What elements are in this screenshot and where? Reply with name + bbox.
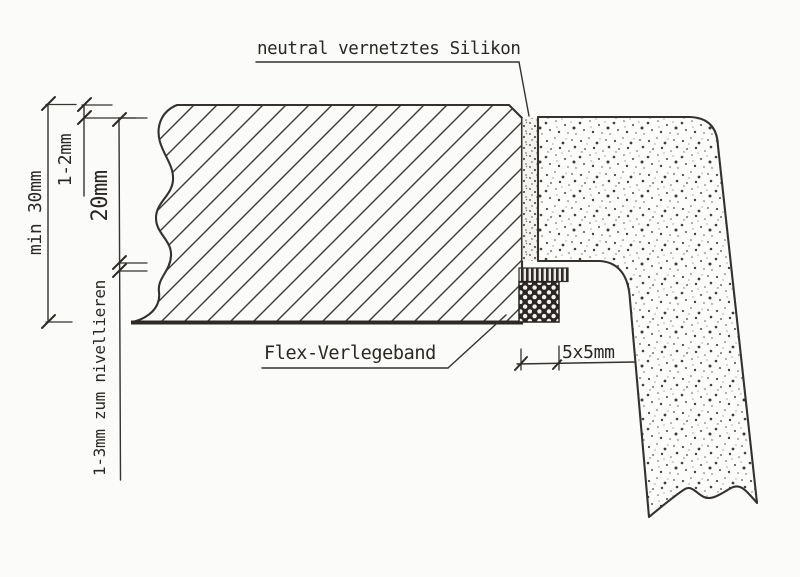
tape-label: Flex-Verlegeband xyxy=(264,343,436,364)
dim-leveling-label: 1-3mm zum nivellieren xyxy=(90,280,109,476)
silicone-label: neutral vernetztes Silikon xyxy=(257,39,521,59)
silicone-joint xyxy=(523,118,539,261)
installation-detail-diagram: min 30mm 1-2mm 20mm 1-3mm zum nivelliere… xyxy=(0,0,800,577)
silicone-leader-line xyxy=(519,62,529,116)
wall-panel-cross-section xyxy=(538,117,757,517)
installation-detail-page: min 30mm 1-2mm 20mm 1-3mm zum nivelliere… xyxy=(0,0,800,577)
leveling-layer xyxy=(519,268,568,282)
dim-min-30mm-label: min 30mm xyxy=(25,171,46,255)
dimension-tape-size: 5x5mm xyxy=(515,342,634,370)
dim-20mm-label: 20mm xyxy=(88,170,113,221)
dimension-countertop-thickness: min 30mm xyxy=(25,97,76,328)
countertop-cross-section xyxy=(133,105,522,322)
flex-tape xyxy=(519,282,559,322)
dim-5x5mm-label: 5x5mm xyxy=(562,342,615,363)
dim-1-2mm-label: 1-2mm xyxy=(55,134,76,187)
dimension-panel-depth-and-leveling: 20mm 1-3mm zum nivellieren xyxy=(88,113,147,480)
